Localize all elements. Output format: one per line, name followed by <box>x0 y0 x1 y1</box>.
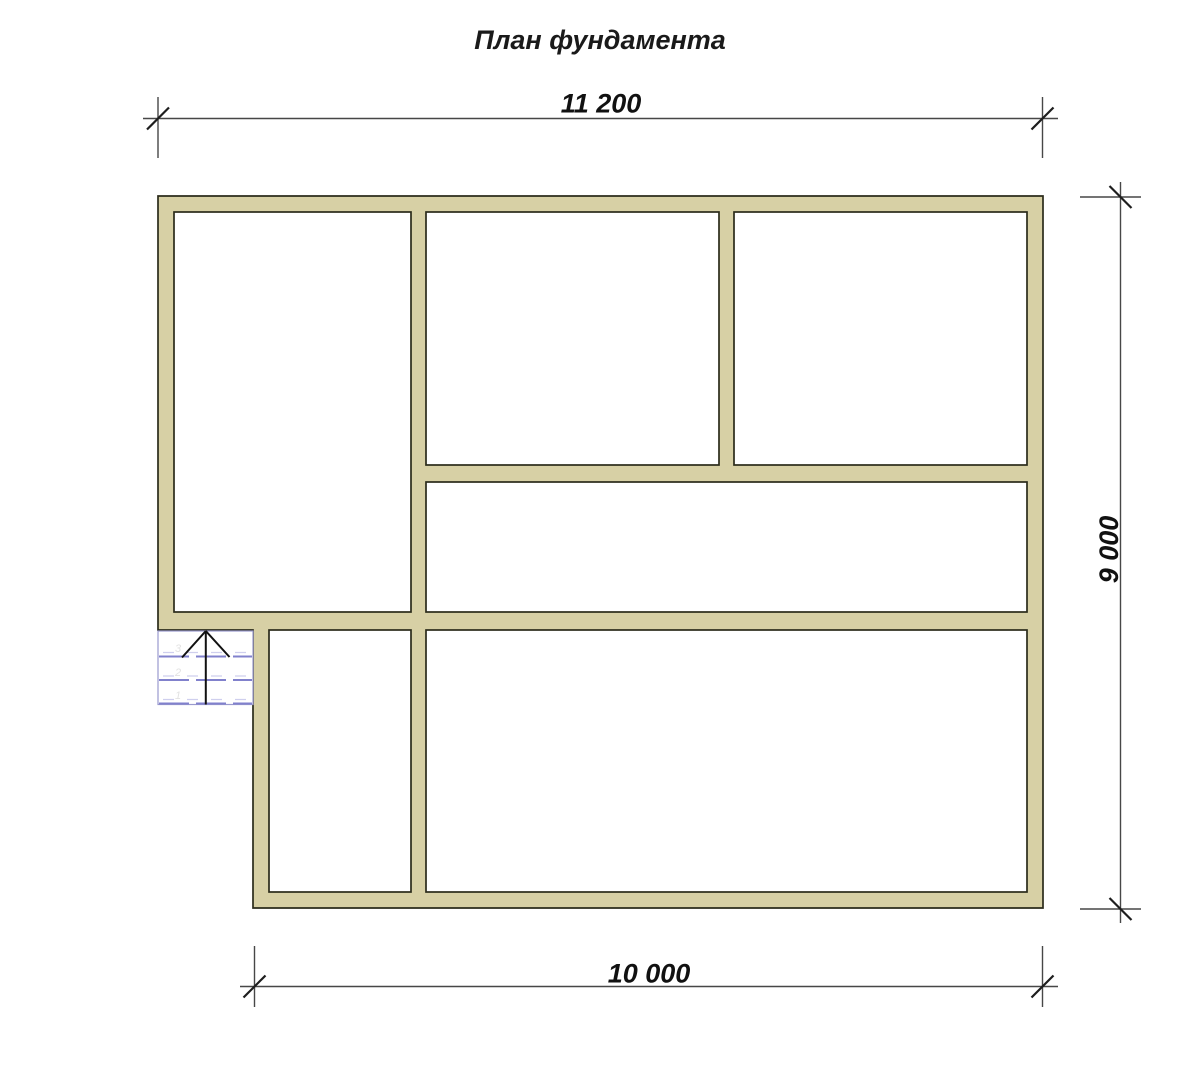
svg-text:9 000: 9 000 <box>1094 516 1124 584</box>
svg-text:11 200: 11 200 <box>561 89 642 119</box>
svg-text:План фундамента: План фундамента <box>474 25 726 55</box>
svg-text:10 000: 10 000 <box>608 959 691 989</box>
svg-text:1: 1 <box>175 690 181 702</box>
svg-text:3: 3 <box>175 643 182 655</box>
svg-text:2: 2 <box>174 667 181 679</box>
